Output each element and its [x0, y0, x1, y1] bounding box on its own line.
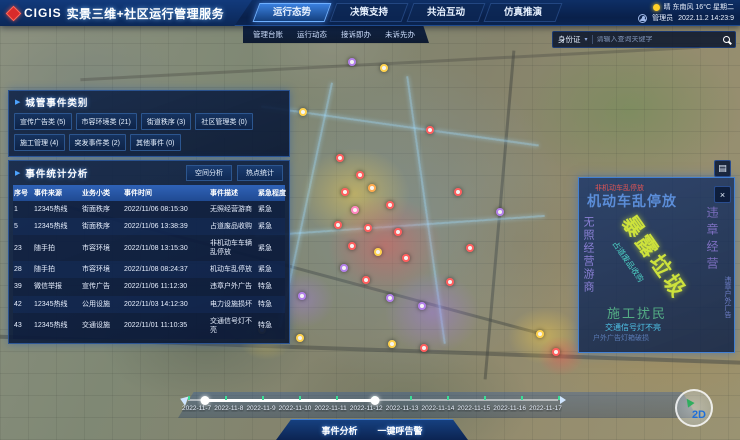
timeline-tick [188, 396, 190, 400]
map-marker[interactable] [394, 228, 402, 236]
spatial-analysis-button[interactable]: 空间分析 [186, 165, 232, 181]
chevron-down-icon[interactable]: ▾ [585, 36, 588, 43]
tab-simulation[interactable]: 仿真推演 [484, 3, 563, 22]
timeline-tick [558, 396, 560, 400]
map-marker[interactable] [348, 58, 356, 66]
wordcloud-term: 无照经营游商 [582, 216, 593, 294]
table-row[interactable]: 4312345热线交通设施2022/11/01 11:10:35交通信号灯不亮特… [13, 313, 285, 339]
map-marker[interactable] [334, 221, 342, 229]
one-key-alarm-button[interactable]: 一键呼告警 [378, 424, 423, 437]
category-construction-button[interactable]: 施工管理 (4) [14, 134, 65, 151]
tab-decision-support[interactable]: 决策支持 [330, 3, 409, 22]
table-row[interactable]: 4212345热线公用设施2022/11/03 14:12:30电力设施损坏特急 [13, 296, 285, 313]
map-marker[interactable] [552, 348, 560, 356]
map-marker[interactable] [356, 171, 364, 179]
brand-area: CIGIS 实景三维+社区运行管理服务 [0, 0, 252, 26]
timeline-tick [484, 396, 486, 400]
wordcloud-term: 违章户外广告 [724, 276, 731, 318]
map-marker[interactable] [418, 302, 426, 310]
map-marker[interactable] [380, 64, 388, 72]
wordcloud-panel: 非机动车乱停放 机动车乱停放 无照经营游商 占道废品收购 暴露垃圾 违章经营 违… [578, 177, 735, 353]
map-marker[interactable] [386, 294, 394, 302]
weather-text: 晴 东南风 16°C 星期二 [664, 2, 734, 12]
username: 管理员 [652, 13, 673, 23]
page-title: 实景三维+社区运行管理服务 [67, 5, 225, 22]
divider [592, 35, 593, 44]
map-marker[interactable] [388, 340, 396, 348]
timeline-handle-start[interactable] [200, 396, 209, 405]
timeline-selected-range [205, 399, 375, 402]
timeline-handle-end[interactable] [370, 396, 379, 405]
wordcloud-term: 非机动车乱停放 [595, 185, 644, 192]
map-marker[interactable] [341, 188, 349, 196]
map-marker[interactable] [336, 154, 344, 162]
weather-info: 晴 东南风 16°C 星期二 [653, 2, 734, 12]
timeline-tick [299, 396, 301, 400]
compass-label: 2D [692, 409, 706, 421]
map-marker[interactable] [496, 208, 504, 216]
map-marker[interactable] [536, 330, 544, 338]
timeline-tick [447, 396, 449, 400]
map-marker[interactable] [298, 292, 306, 300]
search-category-dropdown[interactable]: 身份证 [558, 34, 581, 45]
event-category-panel: ▶ 城管事件类别 宣传广告类 (5) 市容环境类 (21) 街道秩序 (3) 社… [8, 90, 290, 157]
panel-header: ▶ 城管事件类别 [9, 91, 289, 111]
map-2d-toggle[interactable]: 2D [675, 389, 713, 427]
timeline-tick [521, 396, 523, 400]
category-other-button[interactable]: 其他事件 (0) [130, 134, 181, 151]
tab-operation-status[interactable]: 运行态势 [253, 3, 332, 22]
nav-tabs: 运行态势 决策支持 共治互动 仿真推演 [256, 3, 559, 22]
event-analysis-button[interactable]: 事件分析 [321, 424, 357, 437]
datetime: 2022.11.2 14:23:9 [678, 15, 734, 22]
search-bar: 身份证 ▾ [552, 31, 736, 48]
timeline-tick [410, 396, 412, 400]
map-marker[interactable] [426, 126, 434, 134]
map-marker[interactable] [362, 276, 370, 284]
sun-icon [653, 4, 660, 11]
map-marker[interactable] [299, 108, 307, 116]
timeline-end-marker[interactable] [560, 396, 566, 404]
panel-title: 城管事件类别 [25, 95, 88, 109]
sub-navigation: 管理台账 运行动态 接诉即办 未诉先办 [243, 26, 429, 43]
app-window: CIGIS 实景三维+社区运行管理服务 运行态势 决策支持 共治互动 仿真推演 … [0, 0, 740, 440]
map-marker[interactable] [368, 184, 376, 192]
timeline-tick [225, 396, 227, 400]
events-table: 序号 事件来源 业务小类 事件时间 事件描述 紧急程度 112345热线街面秩序… [13, 185, 285, 339]
play-arrow-icon: ▶ [15, 99, 20, 106]
logo-text: CIGIS [24, 6, 62, 20]
wordcloud-term: 施工扰民 [607, 307, 667, 320]
map-marker[interactable] [340, 264, 348, 272]
top-header: CIGIS 实景三维+社区运行管理服务 运行态势 决策支持 共治互动 仿真推演 … [0, 0, 740, 26]
play-arrow-icon: ▶ [15, 170, 20, 177]
map-marker[interactable] [454, 188, 462, 196]
tab-co-governance[interactable]: 共治互动 [407, 3, 486, 22]
table-header-row: 序号 事件来源 业务小类 事件时间 事件描述 紧急程度 [13, 185, 285, 201]
wordcloud-term: 交通信号灯不亮 [605, 324, 661, 332]
subnav-item-complaints[interactable]: 接诉即办 [341, 29, 371, 40]
table-row[interactable]: 512345热线街面秩序2022/11/06 13:38:39占道废品收购紧急 [13, 218, 285, 235]
map-marker[interactable] [351, 206, 359, 214]
map-marker[interactable] [420, 344, 428, 352]
user-icon [638, 14, 647, 23]
map-controls: ▤ × [714, 160, 731, 203]
map-marker[interactable] [348, 242, 356, 250]
table-row[interactable]: 23随手拍市容环境2022/11/08 13:15:30非机动车车辆乱停放紧急 [13, 235, 285, 261]
search-icon[interactable] [723, 36, 730, 43]
map-marker[interactable] [296, 334, 304, 342]
user-info: 管理员 2022.11.2 14:23:9 [638, 13, 734, 23]
table-row[interactable]: 28随手拍市容环境2022/11/08 08:24:37机动车乱停放紧急 [13, 261, 285, 278]
category-buttons: 宣传广告类 (5) 市容环境类 (21) 街道秩序 (3) 社区管理类 (0) … [9, 111, 289, 151]
cigis-logo-icon [6, 5, 22, 21]
panel-title: 事件统计分析 [25, 166, 88, 180]
category-community-button[interactable]: 社区管理类 (0) [195, 113, 253, 130]
footer-action-bar: 事件分析 一键呼告警 [276, 419, 468, 440]
timeline-tick [262, 396, 264, 400]
wordcloud-term: 违章经营 [706, 206, 718, 274]
wordcloud-term: 户外广告灯箱破损 [593, 335, 649, 342]
timeline-dates: 2022-11-7 2022-11-8 2022-11-9 2022-11-10… [182, 405, 562, 412]
wordcloud-term: 机动车乱停放 [587, 194, 677, 208]
subnav-item-proactive[interactable]: 未诉先办 [385, 29, 415, 40]
event-stats-panel: ▶ 事件统计分析 空间分析 热点统计 序号 事件来源 业务小类 事件时间 事件描… [8, 160, 290, 344]
table-row[interactable]: 112345热线街面秩序2022/11/06 08:15:30无照经营游商紧急 [13, 201, 285, 218]
category-environment-button[interactable]: 市容环境类 (21) [76, 113, 137, 130]
category-emergency-button[interactable]: 突发事件类 (2) [69, 134, 127, 151]
stats-actions: 空间分析 热点统计 [186, 165, 283, 181]
hotspot-stats-button[interactable]: 热点统计 [237, 165, 283, 181]
category-street-order-button[interactable]: 街道秩序 (3) [141, 113, 192, 130]
search-input[interactable] [597, 36, 719, 43]
panel-header: ▶ 事件统计分析 空间分析 热点统计 [9, 161, 289, 183]
timeline-slider[interactable] [188, 399, 558, 401]
map-marker[interactable] [446, 278, 454, 286]
subnav-item-ledger[interactable]: 管理台账 [253, 29, 283, 40]
category-ads-button[interactable]: 宣传广告类 (5) [14, 113, 72, 130]
map-marker[interactable] [386, 201, 394, 209]
layers-icon[interactable]: ▤ [714, 160, 731, 177]
map-marker[interactable] [364, 224, 372, 232]
close-icon[interactable]: × [714, 186, 731, 203]
map-marker[interactable] [374, 248, 382, 256]
table-row[interactable]: 39微信举报宣传广告2022/11/06 11:12:30违章户外广告特急 [13, 278, 285, 295]
subnav-item-dynamics[interactable]: 运行动态 [297, 29, 327, 40]
compass-needle-icon [683, 396, 694, 407]
map-marker[interactable] [466, 244, 474, 252]
map-marker[interactable] [402, 254, 410, 262]
timeline-tick [336, 396, 338, 400]
